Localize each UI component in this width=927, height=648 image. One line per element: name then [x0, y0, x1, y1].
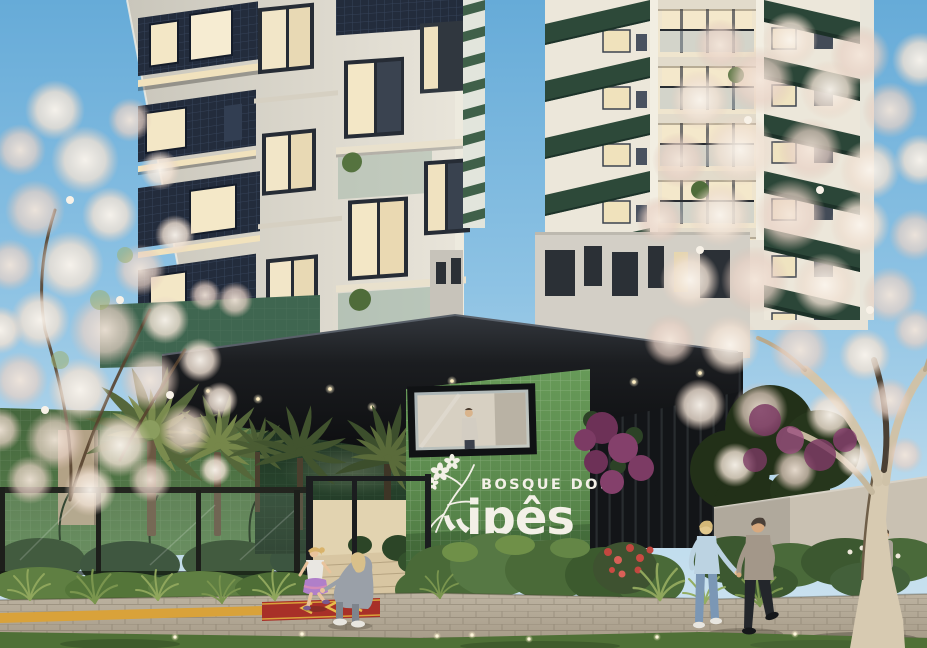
architectural-rendering: BOSQUE DOS ipês [0, 0, 927, 648]
distant-tower-sliver [463, 0, 485, 228]
lobby-window [407, 383, 537, 457]
red-flower-bush [593, 542, 657, 594]
